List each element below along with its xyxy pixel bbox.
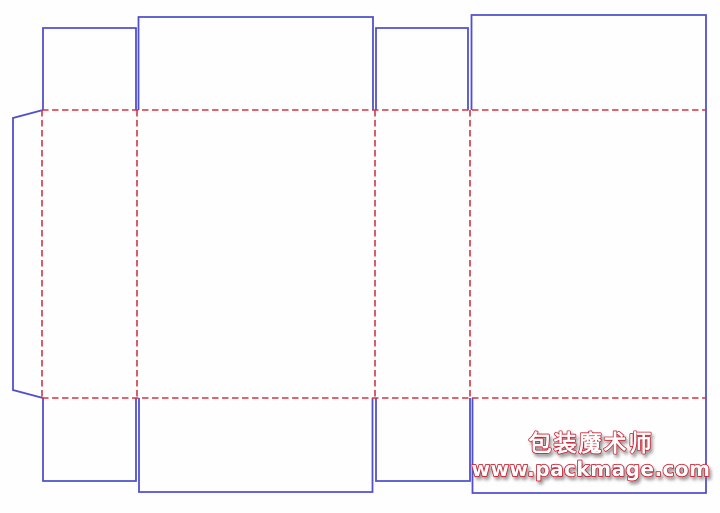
dieline-viewport: 包装魔术师 www.packmage.com: [0, 0, 720, 513]
watermark: 包装魔术师 www.packmage.com: [472, 430, 711, 481]
cut-line-top-tuck-flap-front: [139, 17, 374, 110]
cut-line-glue-flap: [13, 110, 43, 398]
cut-lines-group: [13, 15, 706, 493]
cut-line-top-dust-flap-right: [376, 28, 468, 110]
cut-line-back-panel-outline: [472, 15, 707, 493]
watermark-brand-text: 包装魔术师: [529, 430, 654, 457]
cut-line-bottom-dust-flap-right: [376, 398, 470, 481]
watermark-url-text: www.packmage.com: [472, 457, 711, 481]
dieline-drawing: 包装魔术师 www.packmage.com: [0, 0, 720, 513]
cut-line-bottom-tuck-flap-front: [139, 398, 373, 492]
cut-line-bottom-dust-flap-left: [43, 398, 136, 481]
fold-lines-group: [42, 110, 706, 398]
cut-line-top-dust-flap-left: [43, 28, 136, 110]
